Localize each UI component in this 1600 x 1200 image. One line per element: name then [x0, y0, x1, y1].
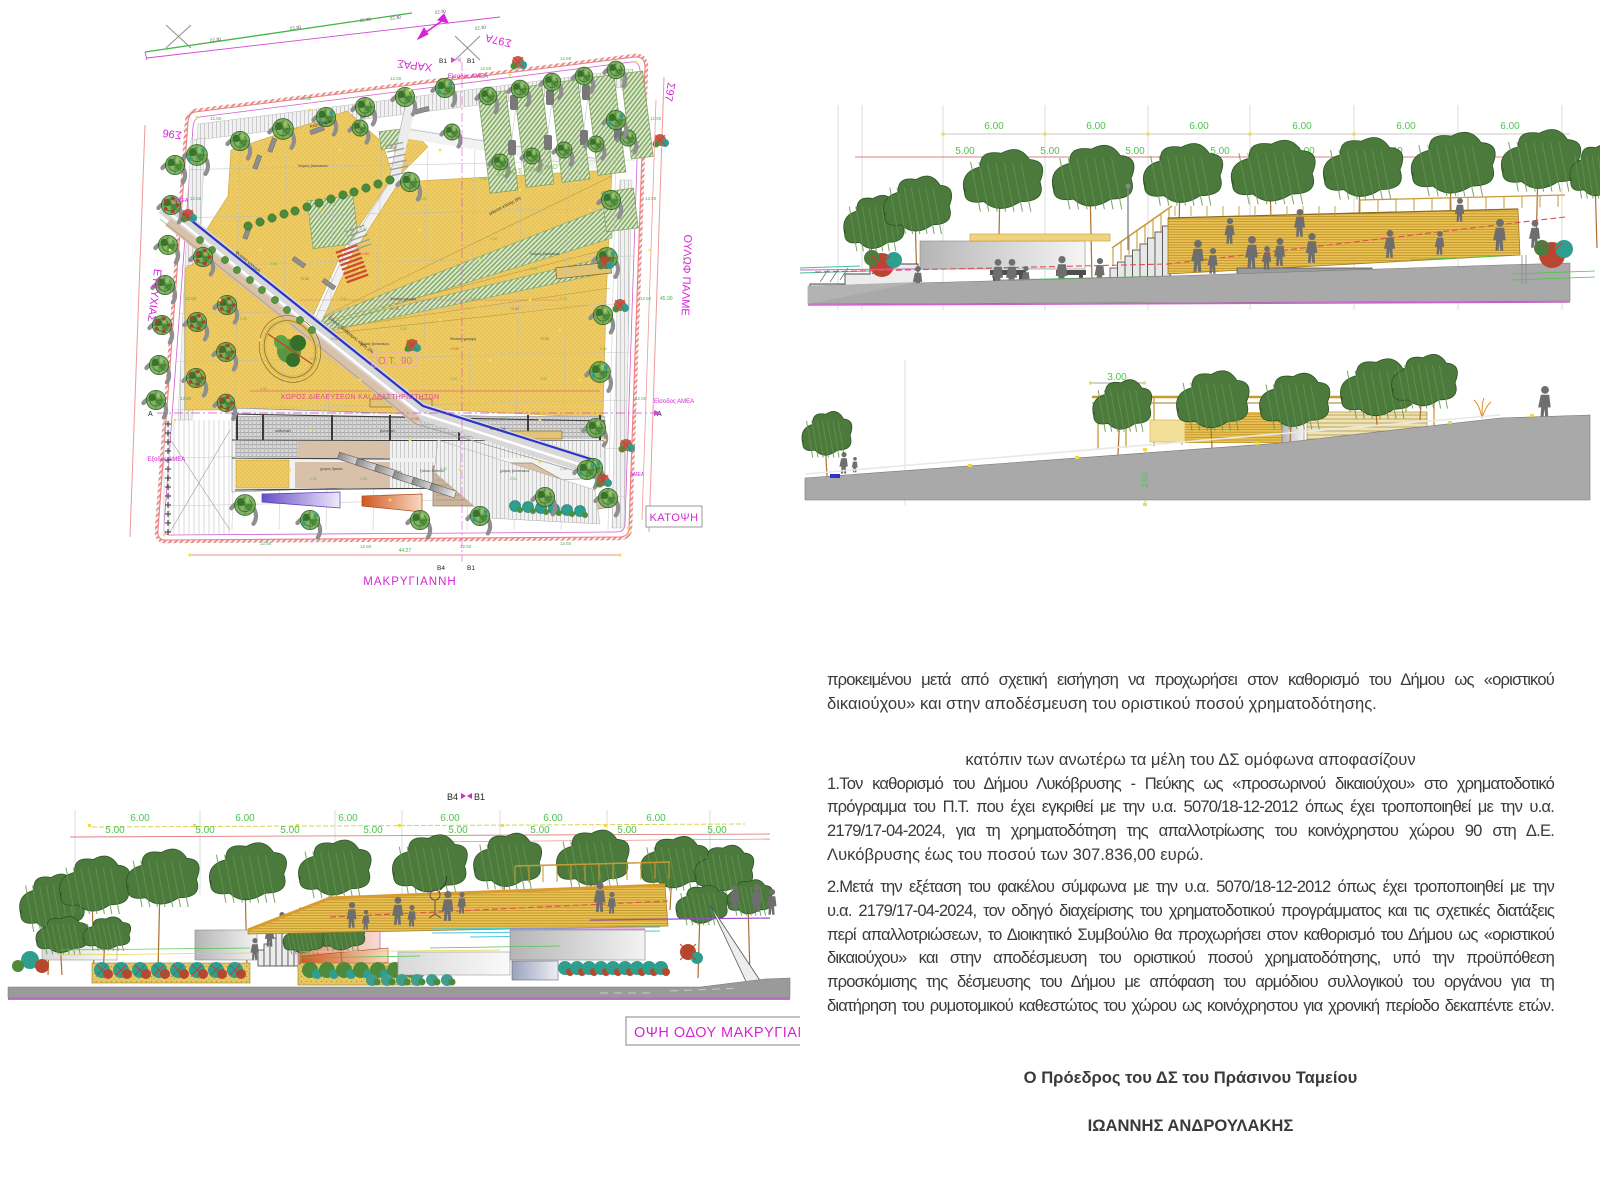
svg-text:B4: B4: [447, 792, 458, 802]
svg-text:12.50: 12.50: [390, 76, 402, 81]
svg-text:2.50: 2.50: [580, 427, 587, 431]
svg-text:+2.80: +2.80: [390, 307, 399, 311]
svg-text:Είσοδος ΑΜΕΑ: Είσοδος ΑΜΕΑ: [448, 74, 488, 80]
svg-text:2.50: 2.50: [270, 262, 277, 266]
svg-text:2.50: 2.50: [480, 177, 487, 181]
svg-text:2.50: 2.50: [360, 477, 367, 481]
svg-text:22.30: 22.30: [209, 36, 221, 43]
svg-text:6.00: 6.00: [984, 121, 1004, 132]
svg-text:12.50: 12.50: [180, 396, 192, 401]
svg-text:2.50: 2.50: [240, 317, 247, 321]
svg-text:12.50: 12.50: [185, 296, 197, 301]
svg-text:12.50: 12.50: [645, 196, 657, 201]
svg-text:6.00: 6.00: [1500, 121, 1520, 132]
svg-text:+2.80: +2.80: [330, 337, 339, 341]
svg-text:ΧΑΡΑΣ: ΧΑΡΑΣ: [396, 57, 433, 73]
svg-text:καθιστικά: καθιστικά: [275, 429, 292, 433]
svg-text:2.50: 2.50: [470, 297, 477, 301]
svg-text:5.00: 5.00: [530, 825, 550, 836]
svg-text:5.00: 5.00: [955, 146, 975, 157]
svg-text:+2.80: +2.80: [450, 347, 459, 351]
svg-text:χώρος βοτανικών: χώρος βοτανικών: [500, 469, 529, 473]
svg-text:Χώρος βοτανικών: Χώρος βοτανικών: [530, 252, 560, 256]
svg-text:2.50: 2.50: [360, 227, 367, 231]
svg-text:5.00: 5.00: [448, 825, 468, 836]
svg-text:+2.80: +2.80: [510, 307, 519, 311]
svg-text:12.50: 12.50: [300, 96, 312, 101]
svg-text:Είσοδος ΑΜΕΑ: Είσοδος ΑΜΕΑ: [654, 399, 694, 405]
svg-text:12.50: 12.50: [560, 541, 572, 546]
svg-text:6.00: 6.00: [543, 813, 563, 824]
svg-text:22.30: 22.30: [474, 24, 486, 31]
svg-text:+2.80: +2.80: [410, 417, 419, 421]
svg-text:2.50: 2.50: [310, 477, 317, 481]
svg-text:ΟΨΗ ΟΔΟΥ ΜΑΚΡΥΓΙΑΝ: ΟΨΗ ΟΔΟΥ ΜΑΚΡΥΓΙΑΝ: [634, 1025, 800, 1041]
svg-text:5.00: 5.00: [280, 825, 300, 836]
svg-text:12.50: 12.50: [640, 296, 652, 301]
svg-text:5.00: 5.00: [363, 825, 383, 836]
svg-text:O.T.: O.T.: [378, 356, 396, 367]
svg-text:2.50: 2.50: [540, 377, 547, 381]
svg-text:2.50: 2.50: [530, 267, 537, 271]
svg-text:12.50: 12.50: [360, 544, 372, 549]
svg-text:ΑΜΕΑ: ΑΜΕΑ: [174, 198, 189, 204]
svg-text:+2.80: +2.80: [300, 277, 309, 281]
svg-text:6.00: 6.00: [646, 813, 666, 824]
svg-text:22.30: 22.30: [359, 16, 371, 23]
svg-text:B1: B1: [474, 792, 485, 802]
svg-text:ΟΥΛΩΦ ΠΑΛΜΕ: ΟΥΛΩΦ ΠΑΛΜΕ: [679, 234, 694, 316]
svg-text:Σ96: Σ96: [162, 126, 183, 141]
svg-text:5.00: 5.00: [195, 825, 215, 836]
svg-text:2.50: 2.50: [600, 347, 607, 351]
svg-text:2.50: 2.50: [500, 417, 507, 421]
svg-text:Έξοδος ΑΜΕΑ: Έξοδος ΑΜΕΑ: [146, 457, 185, 463]
svg-text:B4: B4: [437, 565, 445, 572]
svg-text:A: A: [148, 411, 153, 418]
svg-text:6.00: 6.00: [1292, 121, 1312, 132]
svg-text:6.00: 6.00: [1189, 121, 1209, 132]
svg-text:6.00: 6.00: [440, 813, 460, 824]
svg-text:Σ97Α: Σ97Α: [484, 31, 513, 49]
svg-text:5.00: 5.00: [1125, 146, 1145, 157]
svg-text:22.30: 22.30: [434, 8, 446, 15]
svg-text:22.30: 22.30: [389, 14, 401, 21]
svg-text:βοτανικά: βοτανικά: [380, 429, 395, 433]
svg-text:6.00: 6.00: [1396, 121, 1416, 132]
svg-text:90: 90: [401, 356, 413, 367]
svg-text:ΑΜΕΑ: ΑΜΕΑ: [630, 472, 645, 478]
svg-text:2.50: 2.50: [380, 397, 387, 401]
svg-text:B1: B1: [439, 58, 447, 65]
svg-text:2.50: 2.50: [560, 467, 567, 471]
svg-text:2.50: 2.50: [400, 327, 407, 331]
svg-text:12.50: 12.50: [190, 196, 202, 201]
svg-text:κλίση 7%: κλίση 7%: [490, 427, 506, 431]
svg-text:ΕΥΤΥΧΙΑΣ: ΕΥΤΥΧΙΑΣ: [145, 268, 163, 323]
svg-text:ξύλινο δάπεδο: ξύλινο δάπεδο: [420, 469, 444, 473]
svg-text:45.90: 45.90: [660, 296, 673, 302]
svg-text:ΧΩΡΟΣ ΔΙΕΛΕΥΣΕΩΝ ΚΑΙ ΔΡΑΣΤΗΡΙΟ: ΧΩΡΟΣ ΔΙΕΛΕΥΣΕΩΝ ΚΑΙ ΔΡΑΣΤΗΡΙΟΤΗΤΩΝ: [281, 394, 440, 401]
svg-text:12.50: 12.50: [210, 116, 222, 121]
svg-text:12.50: 12.50: [260, 541, 272, 546]
svg-text:2.50: 2.50: [340, 297, 347, 301]
svg-text:6.00: 6.00: [1086, 121, 1106, 132]
svg-text:ΜΑΚΡΥΓΙΑΝΝΗ: ΜΑΚΡΥΓΙΑΝΝΗ: [363, 576, 456, 588]
svg-text:2.50: 2.50: [260, 387, 267, 391]
svg-text:B1: B1: [467, 58, 475, 65]
svg-text:6.00: 6.00: [130, 813, 150, 824]
svg-text:χώρος δραστ.: χώρος δραστ.: [320, 467, 343, 471]
svg-text:2.50: 2.50: [450, 377, 457, 381]
svg-text:5.00: 5.00: [707, 825, 727, 836]
svg-text:12.50: 12.50: [650, 116, 662, 121]
svg-text:+2.80: +2.80: [360, 252, 369, 256]
svg-text:Φυσική γραμμή: Φυσική γραμμή: [390, 297, 416, 301]
svg-text:2.50: 2.50: [1141, 472, 1150, 488]
svg-text:12.50: 12.50: [460, 544, 472, 549]
svg-text:2.50: 2.50: [560, 297, 567, 301]
svg-text:12.50: 12.50: [560, 56, 572, 61]
svg-text:2.50: 2.50: [420, 197, 427, 201]
svg-text:5.00: 5.00: [617, 825, 637, 836]
svg-text:5.00: 5.00: [105, 825, 125, 836]
svg-text:2.50: 2.50: [310, 357, 317, 361]
svg-text:Φυσική γραμμή: Φυσική γραμμή: [450, 337, 476, 341]
svg-text:6.00: 6.00: [338, 813, 358, 824]
svg-text:44.27: 44.27: [399, 548, 412, 554]
svg-text:+2.80: +2.80: [540, 337, 549, 341]
svg-text:5.00: 5.00: [1040, 146, 1060, 157]
svg-text:6.00: 6.00: [235, 813, 255, 824]
svg-text:12.50: 12.50: [480, 66, 492, 71]
svg-text:Χώρος βοτανικών: Χώρος βοτανικών: [298, 164, 328, 168]
svg-text:2.50: 2.50: [490, 237, 497, 241]
svg-text:ΚΑΤΟΨΗ: ΚΑΤΟΨΗ: [649, 512, 698, 524]
svg-text:B1: B1: [467, 565, 475, 572]
svg-text:12.50: 12.50: [635, 396, 647, 401]
svg-text:2.50: 2.50: [510, 477, 517, 481]
